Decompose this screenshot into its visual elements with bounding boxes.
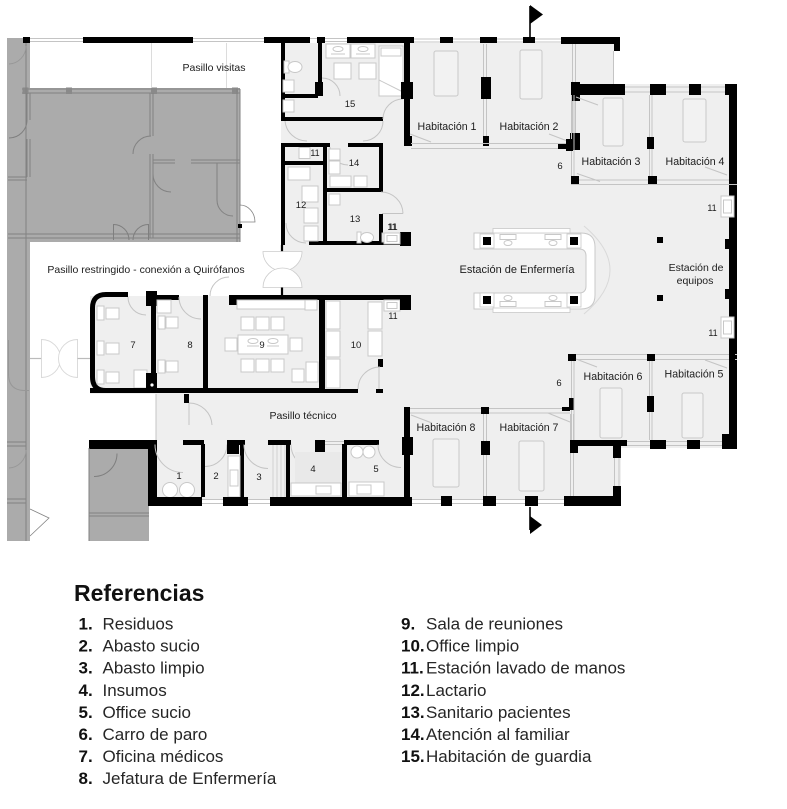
svg-text:Habitación 7: Habitación 7 bbox=[500, 422, 559, 434]
svg-text:Estación lavado de manos: Estación lavado de manos bbox=[426, 659, 625, 678]
svg-text:11: 11 bbox=[310, 148, 319, 158]
svg-text:1.: 1. bbox=[79, 615, 93, 634]
svg-text:Habitación de guardia: Habitación de guardia bbox=[426, 747, 592, 766]
svg-text:Insumos: Insumos bbox=[103, 681, 167, 700]
svg-text:9: 9 bbox=[259, 340, 264, 351]
svg-text:Habitación 2: Habitación 2 bbox=[500, 121, 559, 133]
svg-text:14: 14 bbox=[349, 158, 360, 169]
svg-text:Carro de paro: Carro de paro bbox=[103, 725, 208, 744]
svg-text:8.: 8. bbox=[79, 769, 93, 788]
svg-text:4.: 4. bbox=[79, 681, 93, 700]
svg-text:5: 5 bbox=[373, 464, 378, 475]
svg-text:Pasillo técnico: Pasillo técnico bbox=[269, 410, 336, 422]
svg-text:10: 10 bbox=[351, 340, 362, 351]
svg-text:Sala de reuniones: Sala de reuniones bbox=[426, 615, 563, 634]
svg-text:Habitación 3: Habitación 3 bbox=[582, 156, 641, 168]
svg-text:Habitación 4: Habitación 4 bbox=[666, 156, 725, 168]
svg-text:15: 15 bbox=[345, 99, 356, 110]
svg-text:10.: 10. bbox=[401, 637, 425, 656]
svg-text:6: 6 bbox=[556, 378, 561, 389]
svg-text:13.: 13. bbox=[401, 703, 425, 722]
svg-text:2.: 2. bbox=[79, 637, 93, 656]
svg-text:Pasillo visitas: Pasillo visitas bbox=[182, 62, 245, 74]
svg-text:7: 7 bbox=[130, 340, 135, 351]
svg-text:Office sucio: Office sucio bbox=[103, 703, 192, 722]
svg-text:9.: 9. bbox=[401, 615, 415, 634]
svg-text:6: 6 bbox=[557, 161, 562, 172]
svg-text:Office limpio: Office limpio bbox=[426, 637, 519, 656]
svg-text:Abasto limpio: Abasto limpio bbox=[103, 659, 205, 678]
svg-text:11: 11 bbox=[708, 328, 717, 338]
svg-text:5.: 5. bbox=[79, 703, 93, 722]
svg-text:11: 11 bbox=[388, 311, 397, 321]
svg-text:11: 11 bbox=[388, 222, 397, 232]
svg-text:Referencias: Referencias bbox=[74, 580, 204, 606]
svg-text:3.: 3. bbox=[79, 659, 93, 678]
svg-text:1: 1 bbox=[176, 471, 181, 482]
svg-text:14.: 14. bbox=[401, 725, 425, 744]
svg-text:12: 12 bbox=[296, 200, 307, 211]
svg-text:Habitación 6: Habitación 6 bbox=[584, 371, 643, 383]
svg-text:Residuos: Residuos bbox=[103, 615, 174, 634]
svg-text:Sanitario pacientes: Sanitario pacientes bbox=[426, 703, 571, 722]
svg-text:Atención al familiar: Atención al familiar bbox=[426, 725, 570, 744]
svg-text:Oficina médicos: Oficina médicos bbox=[103, 747, 224, 766]
svg-text:Jefatura de Enfermería: Jefatura de Enfermería bbox=[103, 769, 277, 788]
svg-text:4: 4 bbox=[310, 464, 315, 475]
svg-text:Habitación 5: Habitación 5 bbox=[665, 369, 724, 381]
svg-text:3: 3 bbox=[256, 472, 261, 483]
svg-text:11.: 11. bbox=[401, 659, 424, 678]
svg-text:2: 2 bbox=[213, 471, 218, 482]
svg-text:Estación de Enfermería: Estación de Enfermería bbox=[460, 264, 576, 276]
svg-text:Estación de: Estación de bbox=[669, 262, 724, 274]
svg-text:13: 13 bbox=[350, 214, 361, 225]
svg-text:equipos: equipos bbox=[677, 275, 714, 287]
svg-text:12.: 12. bbox=[401, 681, 425, 700]
svg-text:Pasillo restringido - conexión: Pasillo restringido - conexión a Quirófa… bbox=[47, 264, 244, 276]
svg-text:8: 8 bbox=[187, 340, 192, 351]
svg-text:7.: 7. bbox=[79, 747, 93, 766]
svg-text:6.: 6. bbox=[79, 725, 93, 744]
svg-text:11: 11 bbox=[707, 203, 716, 213]
svg-text:Habitación 8: Habitación 8 bbox=[417, 422, 476, 434]
svg-text:Abasto sucio: Abasto sucio bbox=[103, 637, 200, 656]
svg-text:15.: 15. bbox=[401, 747, 425, 766]
svg-text:Habitación 1: Habitación 1 bbox=[418, 121, 477, 133]
svg-text:Lactario: Lactario bbox=[426, 681, 486, 700]
